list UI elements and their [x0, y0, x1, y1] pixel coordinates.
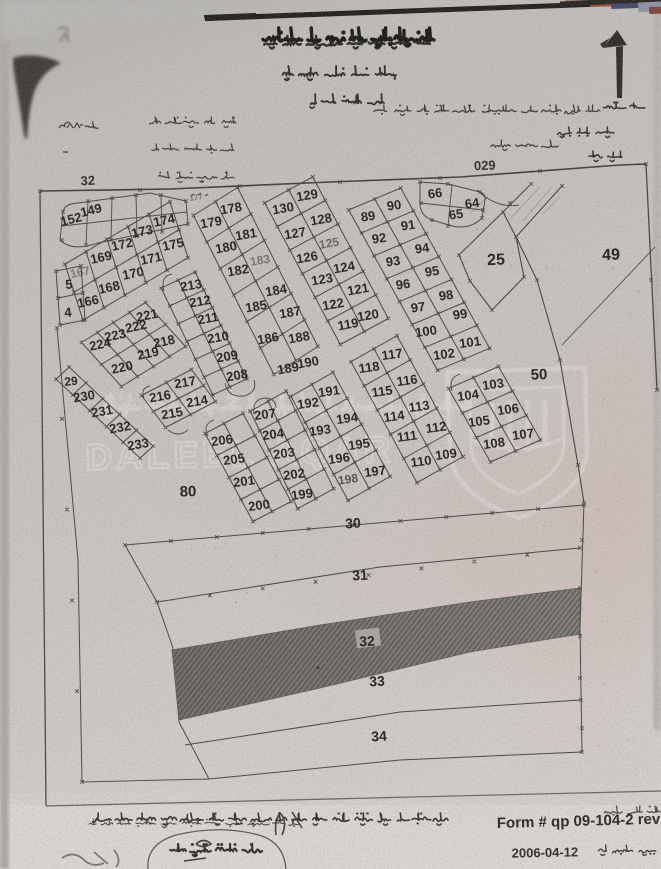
svg-text:91: 91 [400, 217, 416, 234]
svg-text:196: 196 [327, 449, 351, 467]
svg-text:205: 205 [222, 450, 246, 468]
svg-text:25: 25 [487, 251, 505, 269]
svg-text:118: 118 [358, 358, 381, 376]
svg-text:191: 191 [317, 382, 341, 400]
svg-text:33: 33 [369, 673, 386, 690]
svg-text:197: 197 [363, 462, 387, 480]
svg-text:5: 5 [65, 276, 74, 292]
svg-text:99: 99 [452, 306, 468, 323]
svg-text:192: 192 [296, 394, 320, 412]
svg-text:64: 64 [464, 195, 481, 212]
svg-text:203: 203 [272, 444, 296, 462]
svg-text:95: 95 [424, 263, 440, 280]
svg-text:30: 30 [345, 515, 362, 532]
svg-text:50: 50 [530, 366, 547, 384]
svg-text:116: 116 [396, 371, 419, 389]
svg-text:92: 92 [371, 230, 387, 247]
svg-text:200: 200 [247, 496, 271, 514]
svg-text:32: 32 [80, 173, 95, 189]
svg-text:193: 193 [308, 421, 332, 439]
svg-text:80: 80 [179, 483, 196, 501]
svg-text:201: 201 [232, 472, 256, 490]
svg-text:198: 198 [337, 471, 359, 488]
svg-text:94: 94 [414, 240, 431, 257]
svg-text:31: 31 [352, 567, 369, 584]
svg-text:49: 49 [602, 246, 620, 264]
svg-text:101: 101 [458, 333, 482, 351]
svg-text:114: 114 [383, 407, 407, 425]
svg-text:100: 100 [414, 322, 438, 340]
svg-text:65: 65 [448, 206, 464, 223]
svg-text:107: 107 [511, 425, 535, 443]
svg-text:89: 89 [360, 208, 376, 225]
svg-text:029: 029 [474, 158, 496, 174]
svg-text:90: 90 [386, 197, 402, 214]
svg-text:34: 34 [371, 728, 388, 745]
svg-text:66: 66 [427, 185, 443, 202]
svg-text:32: 32 [359, 633, 376, 650]
svg-text:97: 97 [410, 299, 426, 316]
svg-text:93: 93 [385, 253, 401, 270]
svg-text:105: 105 [467, 412, 491, 430]
svg-text:104: 104 [456, 386, 480, 404]
svg-text:102: 102 [432, 345, 456, 363]
svg-text:98: 98 [438, 287, 454, 304]
svg-text:112: 112 [425, 418, 448, 436]
svg-text:2006-04-12: 2006-04-12 [512, 844, 579, 860]
svg-text:199: 199 [290, 485, 314, 503]
svg-text:103: 103 [481, 375, 505, 393]
svg-text:113: 113 [408, 397, 431, 415]
svg-text:110: 110 [410, 452, 433, 470]
svg-text:115: 115 [371, 382, 394, 400]
svg-text:108: 108 [482, 434, 506, 452]
svg-text:111: 111 [396, 427, 418, 445]
svg-text:194: 194 [335, 409, 359, 427]
svg-text:96: 96 [395, 276, 411, 293]
svg-text:29: 29 [64, 374, 79, 389]
svg-text:207: 207 [253, 405, 277, 423]
svg-text:195: 195 [347, 435, 371, 453]
svg-text:106: 106 [496, 400, 520, 418]
svg-text:202: 202 [282, 465, 306, 483]
svg-text:109: 109 [434, 445, 458, 463]
svg-text:117: 117 [381, 345, 404, 363]
svg-text:204: 204 [261, 425, 285, 443]
svg-text:206: 206 [210, 431, 234, 449]
